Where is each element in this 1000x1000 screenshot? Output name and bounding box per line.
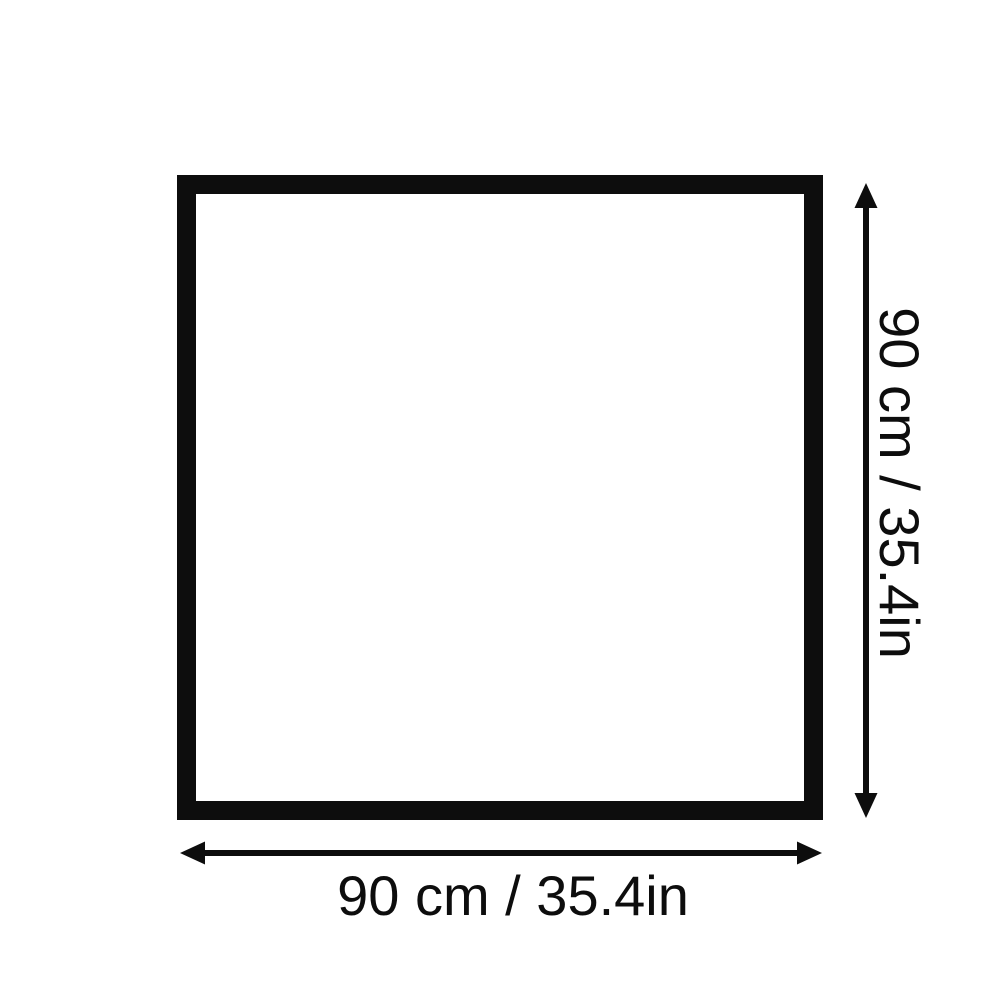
width-dimension-label: 90 cm / 35.4in [337,868,689,924]
height-dimension-label: 90 cm / 35.4in [871,307,927,659]
dimension-diagram: 90 cm / 35.4in 90 cm / 35.4in [0,0,1000,1000]
product-outline-square [177,175,823,820]
